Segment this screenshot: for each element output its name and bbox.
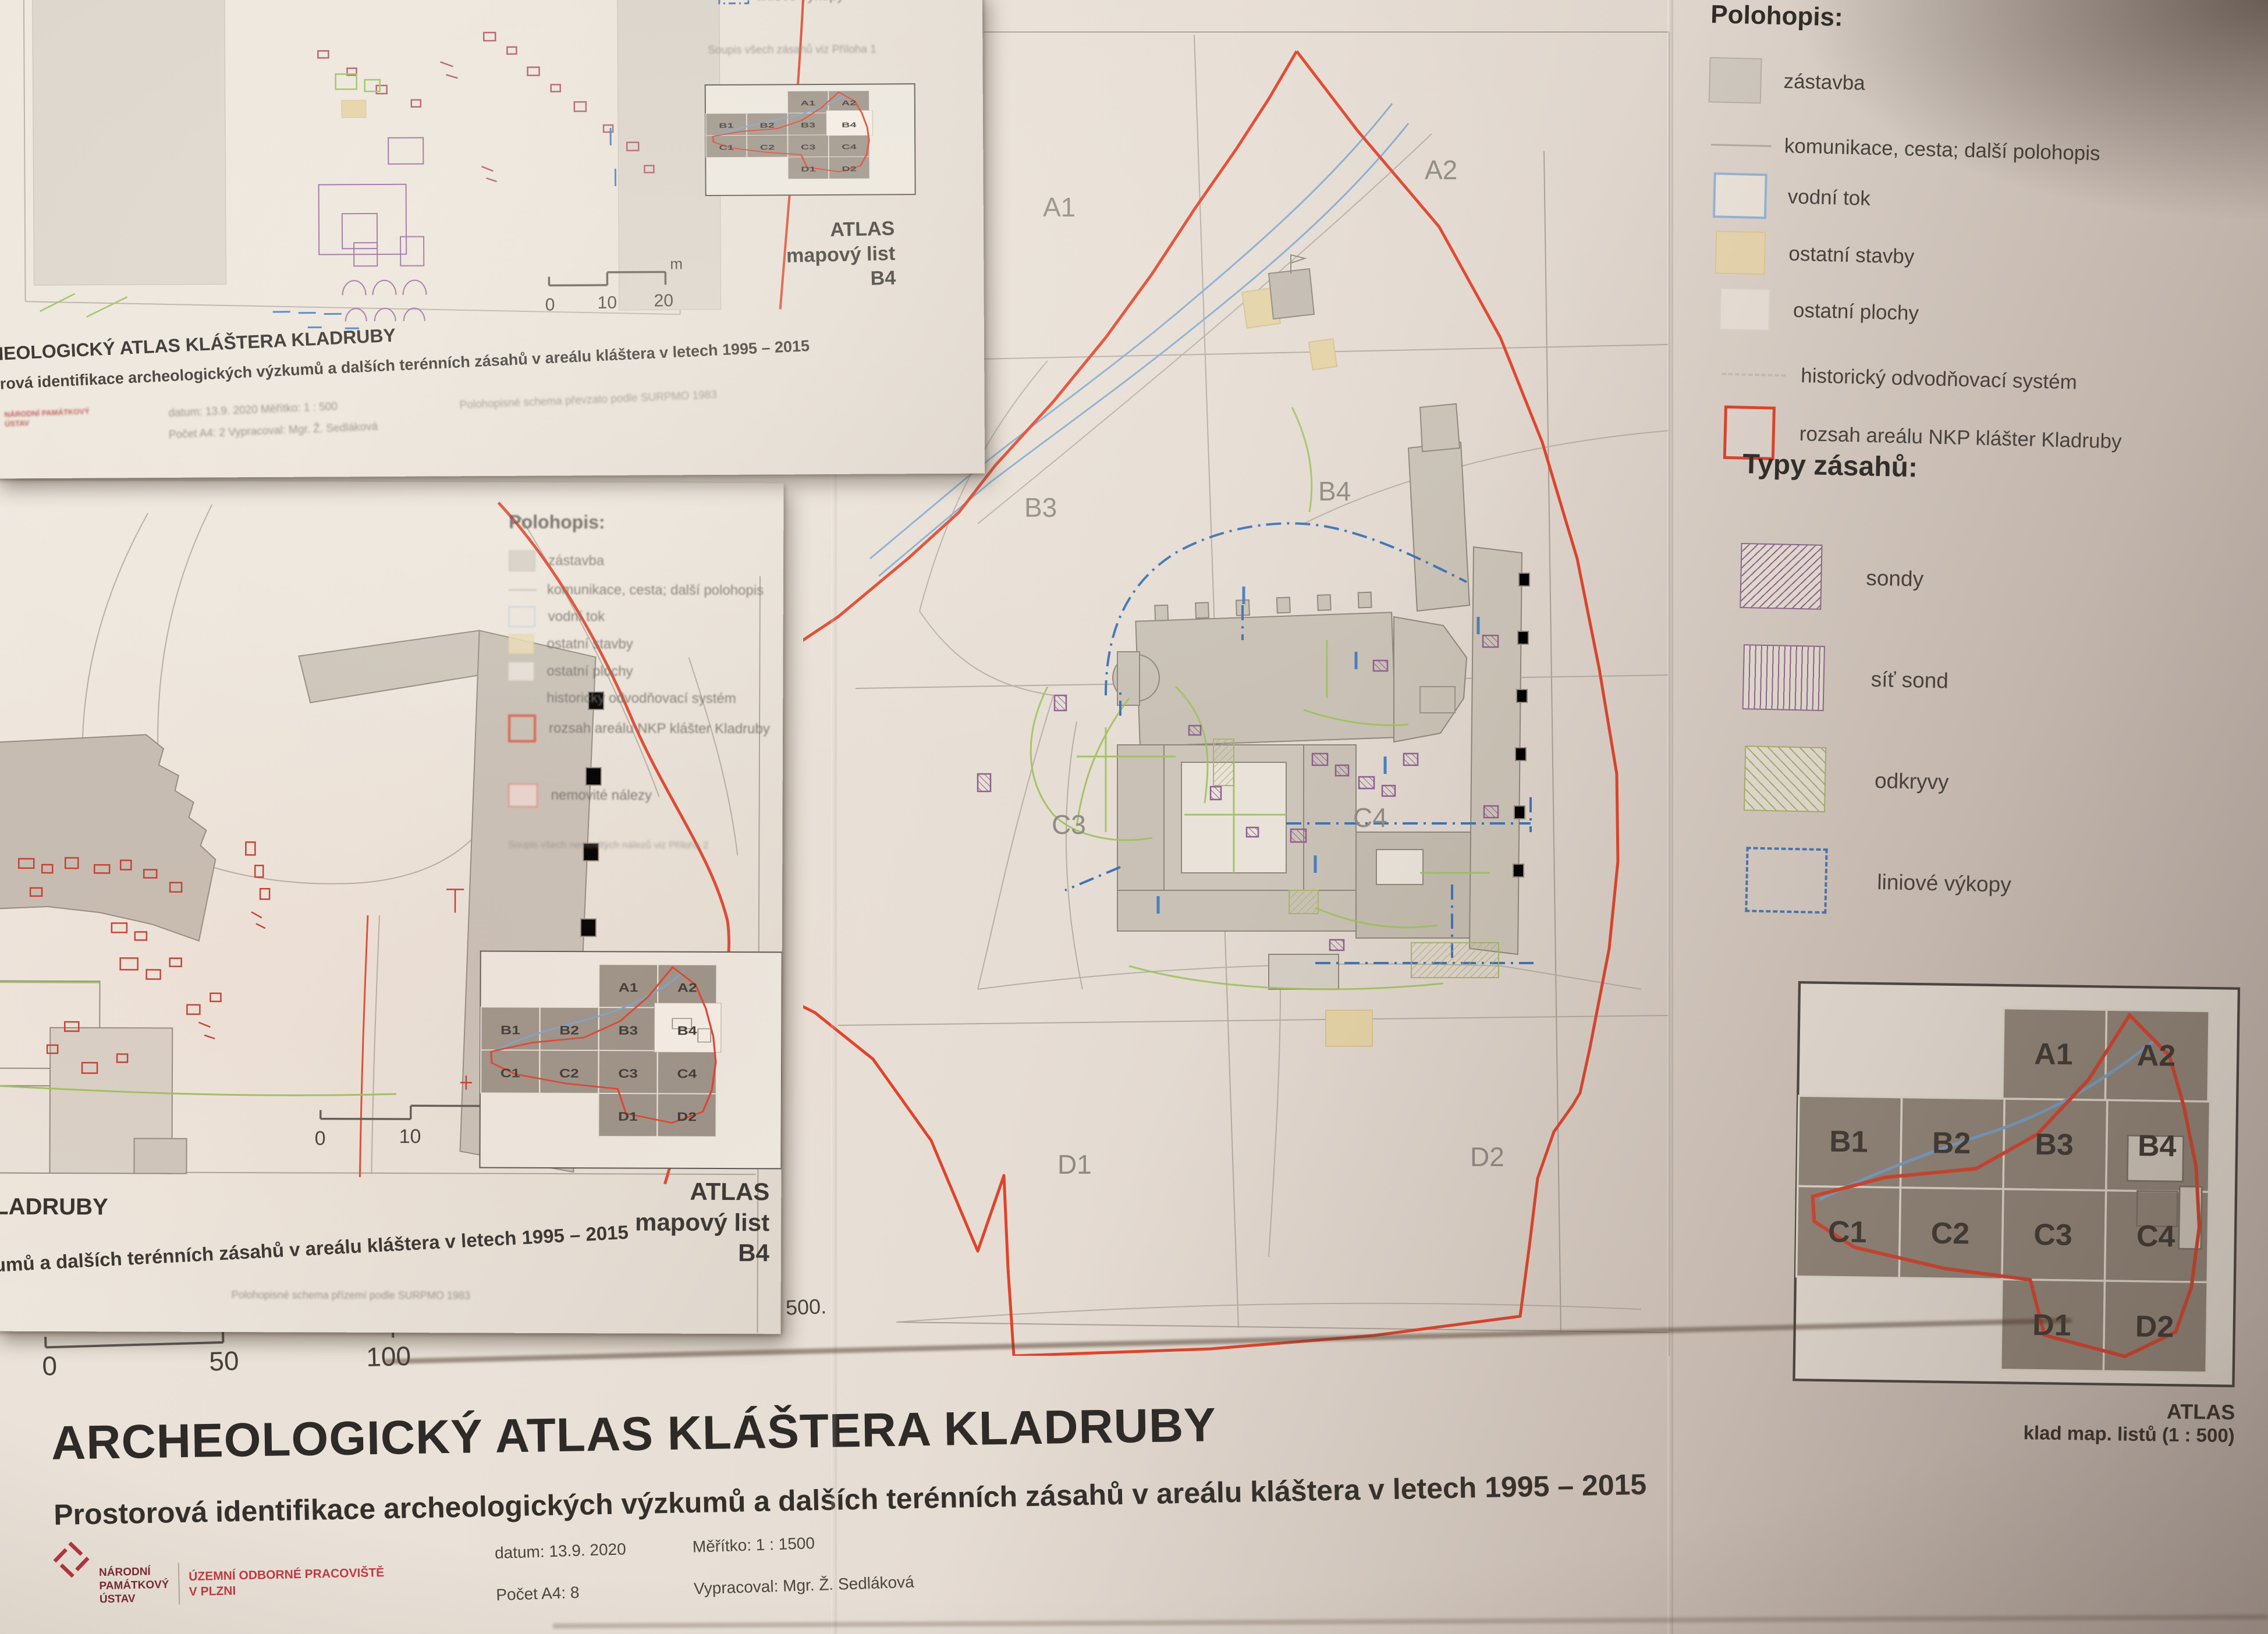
atlas-line1: ATLAS (714, 216, 895, 246)
scale-50: 50 (209, 1345, 240, 1376)
index-label: D2 (2135, 1309, 2174, 1344)
sheet-b-meta-note: Polohopisné schema přízemí podle SURPMO … (232, 1289, 470, 1302)
sheet-b-mapovy-list-b4: 0 10 20 m (0, 481, 784, 1334)
sheet-a-legend-fragment-label: liniové výkopy (757, 0, 844, 5)
info-datum: datum: 13.9. 2020 (495, 1539, 641, 1562)
index-label: C2 (760, 144, 775, 151)
sit-sond-swatch (1742, 644, 1825, 711)
index-label: C3 (801, 144, 815, 151)
index-label: C3 (618, 1067, 638, 1081)
legend-label: ostatní plochy (1793, 299, 1919, 325)
sheet-b-note: Soupis všech nemovitých nálezů viz Přílo… (507, 839, 775, 852)
legend-label: komunikace, cesta; další polohopis (1784, 134, 2100, 165)
index-label: A1 (801, 100, 815, 107)
legend-label: zástavba (1783, 70, 1865, 95)
index-label: B4 (2138, 1128, 2177, 1163)
legend-row-sondy: sondy (1740, 543, 2265, 619)
scale-10: 10 (399, 1125, 421, 1148)
sheet-b-index-map: A1 A2 B1 B2 B3 B4 C1 C2 C3 C4 D1 D2 (480, 951, 782, 1169)
legend-label: zástavba (548, 553, 604, 569)
sheet-a-index-map: A1 A2 B1 B2 B3 B4 C1 C2 C3 C4 D1 D2 (705, 84, 915, 196)
index-label: D1 (618, 1110, 638, 1124)
legend-row-komunikace: komunikace, cesta; další polohopis (1710, 133, 2255, 169)
info-pocet: Počet A4: 8 (496, 1581, 642, 1604)
index-label: B4 (842, 121, 856, 129)
scale-10: 10 (598, 293, 617, 312)
nemovite-nalezy-swatch (508, 783, 538, 808)
atlas-line3: B4 (715, 266, 896, 295)
atlas-line2: mapový list (715, 241, 896, 270)
legend-label: vodní tok (1787, 185, 1871, 210)
grid-label-c4: C4 (1353, 802, 1387, 833)
index-label: C2 (559, 1067, 579, 1081)
sheet-a-blue (272, 128, 616, 329)
ostatni-plochy-swatch (1719, 288, 1770, 331)
sheet-b-legend-title: Polohopis: (509, 511, 776, 534)
legend-row-liniove: liniové výkopy (1745, 847, 2258, 922)
index-label: C4 (2136, 1219, 2175, 1253)
legend-row-zastavba: zástavba (1709, 57, 2257, 116)
npu-logo-icon (52, 1539, 91, 1580)
legend-label: rozsah areálu NKP klášter Kladruby (1799, 422, 2122, 454)
index-label: D2 (842, 165, 856, 173)
npu-logo-block: NÁRODNÍ PAMÁTKOVÝ ÚSTAV ÚZEMNÍ ODBORNÉ P… (52, 1533, 385, 1607)
legend-polohopis-title: Polohopis: (1710, 0, 2258, 42)
index-label: C2 (1930, 1216, 1969, 1251)
index-label: B2 (759, 122, 774, 129)
odkryvy-swatch (1744, 745, 1826, 812)
komunikace-swatch (1711, 144, 1772, 147)
ostatni-plochy-swatch (508, 662, 534, 681)
legend-label: ostatní plochy (546, 663, 633, 680)
liniove-vykopy-swatch (1745, 847, 1827, 914)
index-label: B1 (719, 122, 733, 130)
vodni-tok-swatch (1713, 172, 1767, 219)
sheet-a-note: Soupis všech zásahů viz Příloha 1 (708, 44, 876, 58)
info-meritko: Měřítko: 1 : 1500 (692, 1534, 815, 1557)
scale-20: 20 (654, 291, 674, 310)
legend-label: historický odvodňovací systém (546, 690, 736, 707)
logo-line3: ÚSTAV (100, 1592, 169, 1606)
atlas-line1: ATLAS (553, 1176, 769, 1207)
sheet-b-legend: Polohopis: zástavba komunikace, cesta; d… (507, 511, 776, 852)
index-label: C4 (677, 1067, 697, 1081)
grid-label-c3: C3 (1052, 809, 1086, 840)
logo-line1: NÁRODNÍ (99, 1565, 169, 1580)
sondy-swatch (1740, 543, 1822, 610)
index-label: A1 (619, 981, 638, 994)
sheet-a-atlas-block: ATLAS mapový list B4 (714, 216, 896, 295)
scale-0: 0 (315, 1128, 326, 1150)
index-label: A2 (677, 981, 697, 995)
odvodnovaci-swatch (1722, 373, 1786, 377)
logo-dept2: V PLZNI (189, 1580, 385, 1600)
index-label: B2 (559, 1024, 579, 1038)
index-label: B2 (1932, 1125, 1971, 1160)
grid-label-d2: D2 (1470, 1142, 1504, 1172)
sheet-b-title-fragment: LADRUBY (0, 1194, 108, 1221)
scale-0: 0 (545, 295, 555, 314)
scale-unit: m (670, 255, 683, 272)
grid-label-a1: A1 (1043, 192, 1076, 222)
grid-label-b3: B3 (1024, 492, 1057, 523)
legend-row-ostatni-plochy: ostatní plochy (1719, 288, 2251, 343)
index-label: D1 (2032, 1308, 2071, 1342)
index-label: C3 (2033, 1217, 2072, 1252)
legend-label: ostatní stavby (547, 636, 633, 653)
legend-label: liniové výkopy (1877, 870, 2011, 897)
index-map-main: A1 A2 B1 B2 B3 B4 C1 C2 C3 C4 D1 D2 ATLA… (1791, 981, 2241, 1447)
legend-row-ostatni-stavby: ostatní stavby (1715, 230, 2253, 287)
grid-label-a2: A2 (1425, 155, 1457, 185)
index-label: C4 (842, 143, 856, 151)
legend-label: historický odvodňovací systém (1801, 364, 2077, 395)
photo-of-atlas-poster: A1 A2 B3 B4 C3 C4 D1 D2 Polohopis: zásta… (0, 0, 2268, 1634)
liniove-fragment-swatch (719, 0, 748, 3)
sheet-a-mapovy-list-b4: 0 10 20 m (0, 0, 985, 478)
logo-line2: PAMÁTKOVÝ (99, 1579, 169, 1593)
index-label: A2 (842, 100, 856, 107)
index-label: B3 (2035, 1127, 2074, 1161)
legend-label: ostatní stavby (1788, 242, 1915, 268)
index-label: B3 (801, 122, 815, 129)
rozsah-nkp-swatch (508, 715, 536, 743)
grid-label-d1: D1 (1057, 1149, 1092, 1180)
legend-label: sondy (1866, 566, 1924, 591)
logo-divider (178, 1562, 180, 1604)
legend-label: vodní tok (548, 609, 605, 625)
legend-label: odkryvy (1875, 769, 1949, 795)
index-label: B4 (677, 1024, 698, 1038)
sheet-a-rooms (318, 138, 427, 322)
index-label: C1 (501, 1067, 520, 1081)
ostatni-stavby-swatch (509, 634, 534, 654)
index-label: A1 (2034, 1037, 2073, 1071)
legend-typy-zasahu: Typy zásahů: sondy síť sond odkryvy lini… (1733, 448, 2266, 923)
info-vypracoval: Vypracoval: Mgr. Ž. Sedláková (694, 1573, 915, 1599)
index-label: A2 (2136, 1038, 2175, 1072)
legend-row-odkryvy: odkryvy (1744, 745, 2260, 822)
scale-100: 100 (366, 1341, 411, 1372)
vodni-tok-swatch (509, 606, 535, 627)
info-block: datum: 13.9. 2020 Měřítko: 1 : 1500 Poče… (495, 1531, 915, 1605)
komunikace-swatch (509, 589, 537, 591)
scale-0: 0 (42, 1351, 58, 1378)
index-label: B1 (501, 1024, 520, 1038)
sheet-a-logo-smudge: NÁRODNÍ PAMÁTKOVÝ ÚSTAV (4, 407, 92, 428)
legend-label: komunikace, cesta; další polohopis (547, 582, 764, 599)
zastavba-swatch (509, 550, 535, 571)
index-label: C1 (1828, 1214, 1867, 1249)
poster-subtitle: Prostorová identifikace archeologických … (54, 1468, 1647, 1532)
ostatni-stavby-swatch (1715, 230, 1766, 275)
legend-label: rozsah areálu NKP klášter Kladruby (549, 720, 770, 737)
legend-label: nemovité nálezy (551, 787, 652, 804)
index-label: D1 (801, 165, 815, 173)
legend-row-odvodnovaci: historický odvodňovací systém (1722, 363, 2249, 399)
legend-row-sit-sond: síť sond (1742, 644, 2263, 720)
legend-row-vodni-tok: vodní tok (1713, 172, 2254, 231)
index-label: B1 (1829, 1124, 1868, 1159)
grid-label-b4: B4 (1318, 476, 1351, 506)
zastavba-swatch (1709, 57, 1762, 104)
index-label: C1 (719, 144, 733, 151)
odvodnovaci-swatch (508, 698, 537, 699)
monastery-buildings (1113, 255, 1529, 1046)
index-label: B3 (618, 1024, 638, 1038)
legend-label: síť sond (1871, 667, 1948, 694)
legend-polohopis: Polohopis: zástavba komunikace, cesta; d… (1700, 0, 2258, 472)
bottom-fold (553, 1614, 2268, 1628)
poster-title: ARCHEOLOGICKÝ ATLAS KLÁŠTERA KLADRUBY (51, 1398, 1216, 1470)
sheet-a-marks (318, 32, 654, 183)
index-label: D2 (677, 1110, 697, 1124)
vertical-fold (1667, 0, 1673, 1634)
